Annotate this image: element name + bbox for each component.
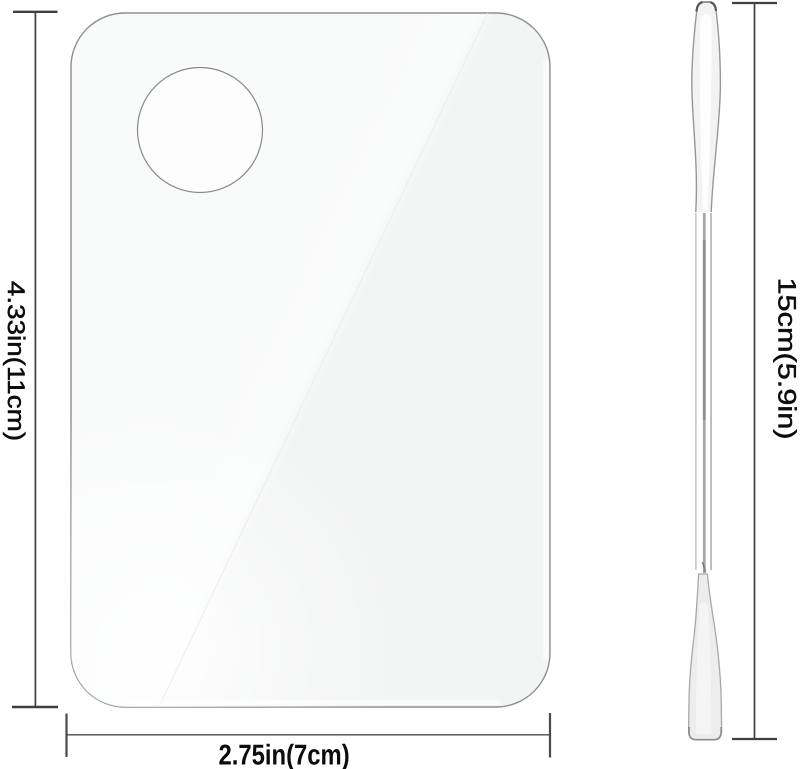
- svg-text:15cm(5.9in): 15cm(5.9in): [773, 277, 801, 439]
- svg-text:4.33in(11cm): 4.33in(11cm): [3, 281, 30, 441]
- svg-text:2.75in(7cm): 2.75in(7cm): [219, 740, 350, 769]
